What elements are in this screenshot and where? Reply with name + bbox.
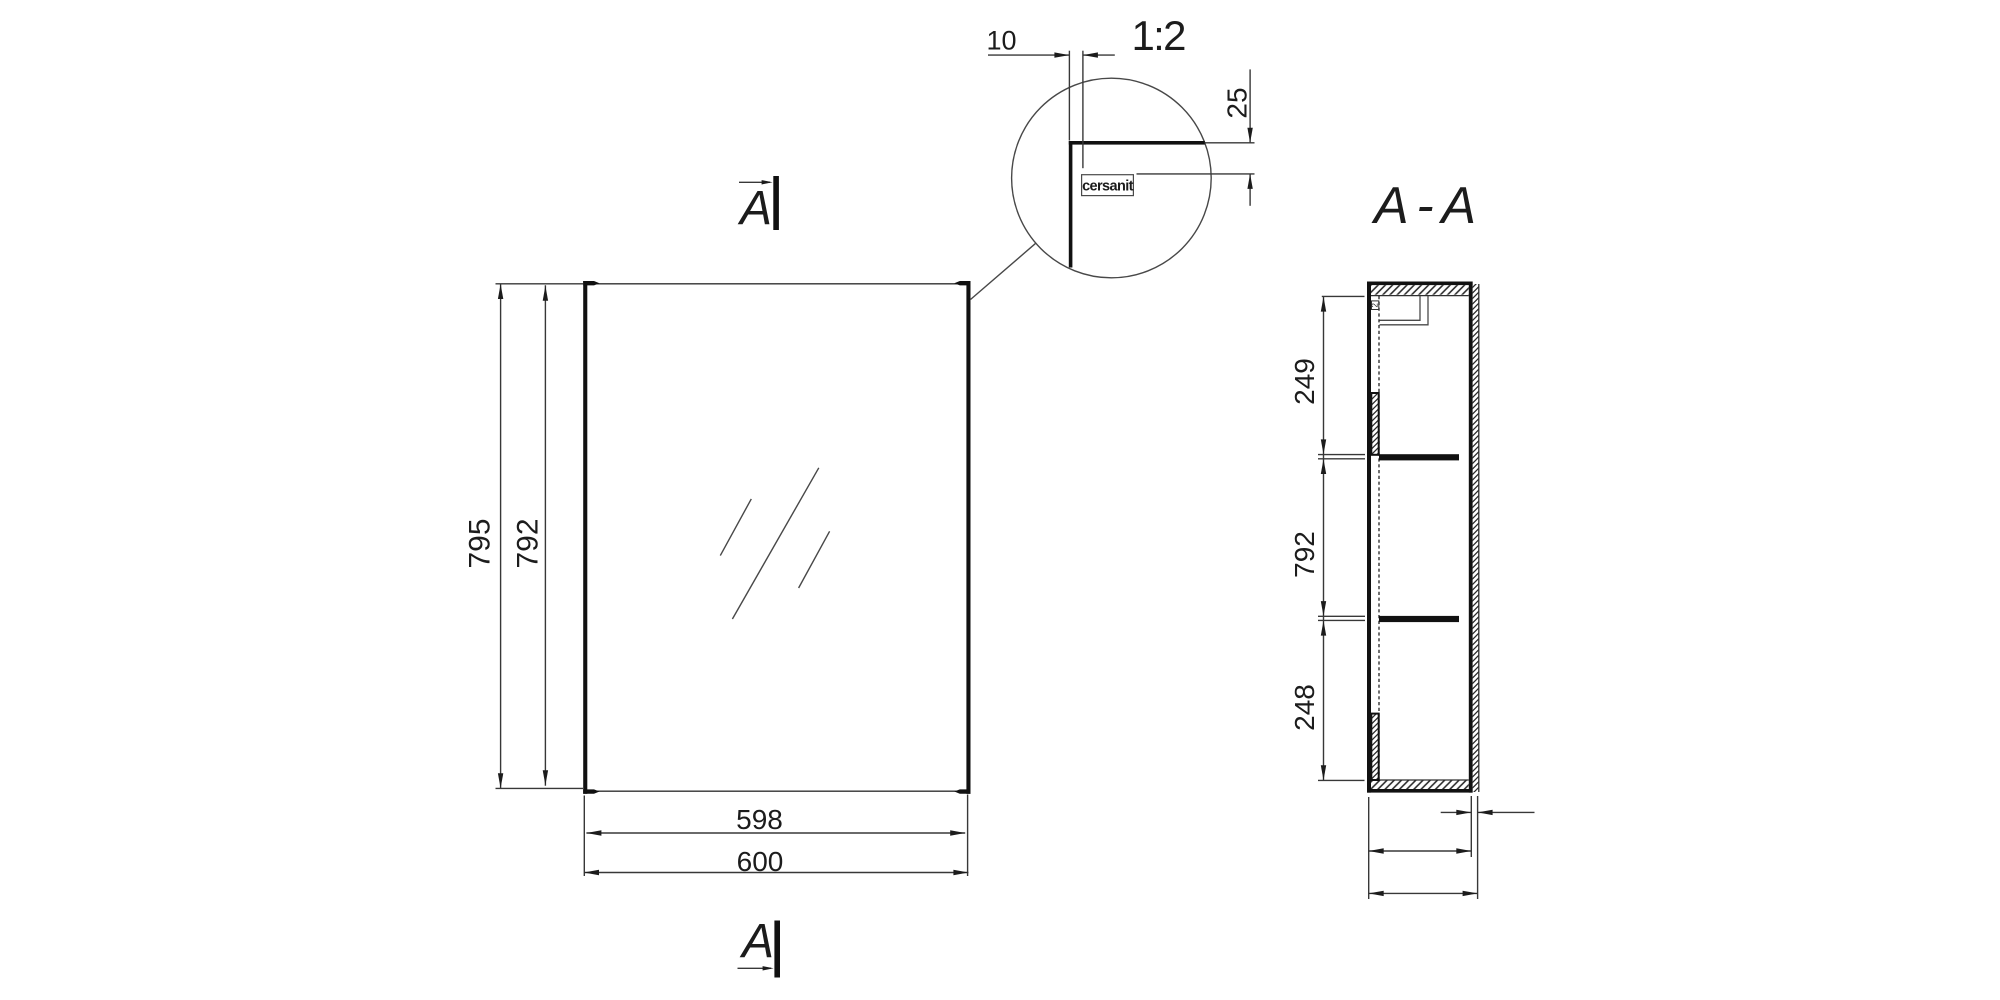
svg-text:792: 792 bbox=[1289, 531, 1320, 578]
svg-text:2: 2 bbox=[1371, 303, 1380, 308]
svg-text:cersanit: cersanit bbox=[1082, 179, 1134, 195]
svg-text:795: 795 bbox=[464, 518, 497, 568]
svg-text:1:2: 1:2 bbox=[1132, 12, 1187, 59]
svg-text:25: 25 bbox=[1222, 87, 1253, 118]
svg-text:10: 10 bbox=[986, 26, 1016, 56]
svg-text:249: 249 bbox=[1289, 358, 1320, 405]
svg-text:598: 598 bbox=[736, 804, 783, 835]
svg-text:792: 792 bbox=[512, 518, 545, 568]
svg-text:248: 248 bbox=[1289, 684, 1320, 731]
svg-text:A - A: A - A bbox=[1371, 177, 1476, 235]
svg-text:A: A bbox=[739, 915, 774, 968]
svg-text:600: 600 bbox=[737, 846, 784, 877]
svg-text:A: A bbox=[737, 182, 772, 235]
